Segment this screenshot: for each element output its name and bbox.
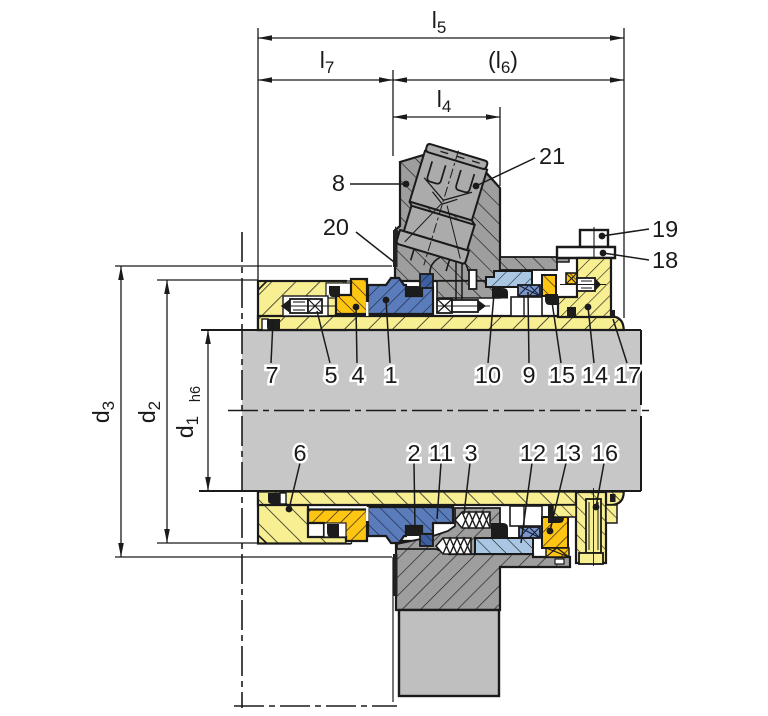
svg-text:17: 17 [615,362,641,388]
svg-text:16: 16 [592,440,618,466]
svg-text:3: 3 [464,440,477,466]
svg-text:19: 19 [652,216,678,242]
svg-text:7: 7 [265,362,278,388]
svg-text:6: 6 [293,440,306,466]
svg-text:11: 11 [429,440,453,466]
svg-text:4: 4 [351,362,364,388]
svg-text:9: 9 [522,362,535,388]
svg-text:12: 12 [520,440,546,466]
svg-text:15: 15 [549,362,575,388]
svg-text:13: 13 [555,440,581,466]
svg-text:14: 14 [582,362,608,388]
svg-text:21: 21 [539,143,565,169]
svg-text:10: 10 [475,362,501,388]
svg-text:18: 18 [652,247,678,273]
svg-text:20: 20 [323,214,349,240]
svg-text:h6: h6 [188,386,204,402]
svg-text:1: 1 [384,362,397,388]
svg-text:5: 5 [324,362,337,388]
svg-text:2: 2 [407,440,420,466]
svg-text:8: 8 [332,170,345,196]
